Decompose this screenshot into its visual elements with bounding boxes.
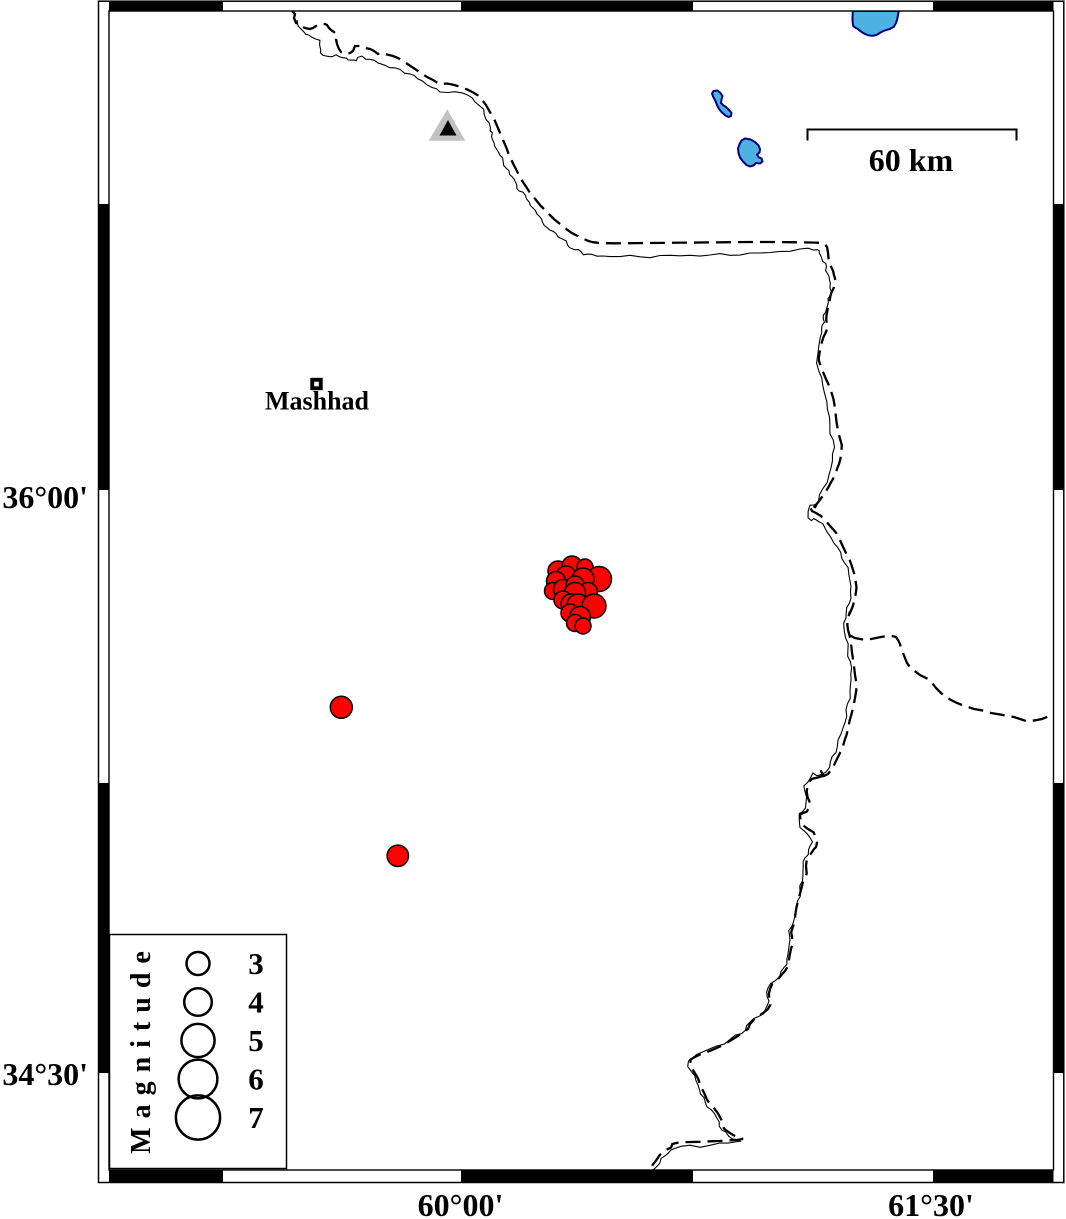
svg-text:4: 4 (248, 985, 264, 1020)
svg-text:6: 6 (248, 1062, 264, 1097)
svg-text:34°30': 34°30' (2, 1056, 88, 1092)
svg-text:3: 3 (248, 946, 264, 981)
svg-text:36°00': 36°00' (2, 479, 88, 515)
svg-text:Mashhad: Mashhad (265, 387, 370, 416)
svg-text:60°00': 60°00' (418, 1187, 504, 1219)
svg-text:Magnitude: Magnitude (126, 942, 157, 1154)
svg-text:5: 5 (248, 1023, 264, 1058)
svg-text:7: 7 (248, 1100, 264, 1135)
svg-text:61°30': 61°30' (888, 1187, 974, 1219)
svg-text:60 km: 60 km (869, 142, 954, 178)
